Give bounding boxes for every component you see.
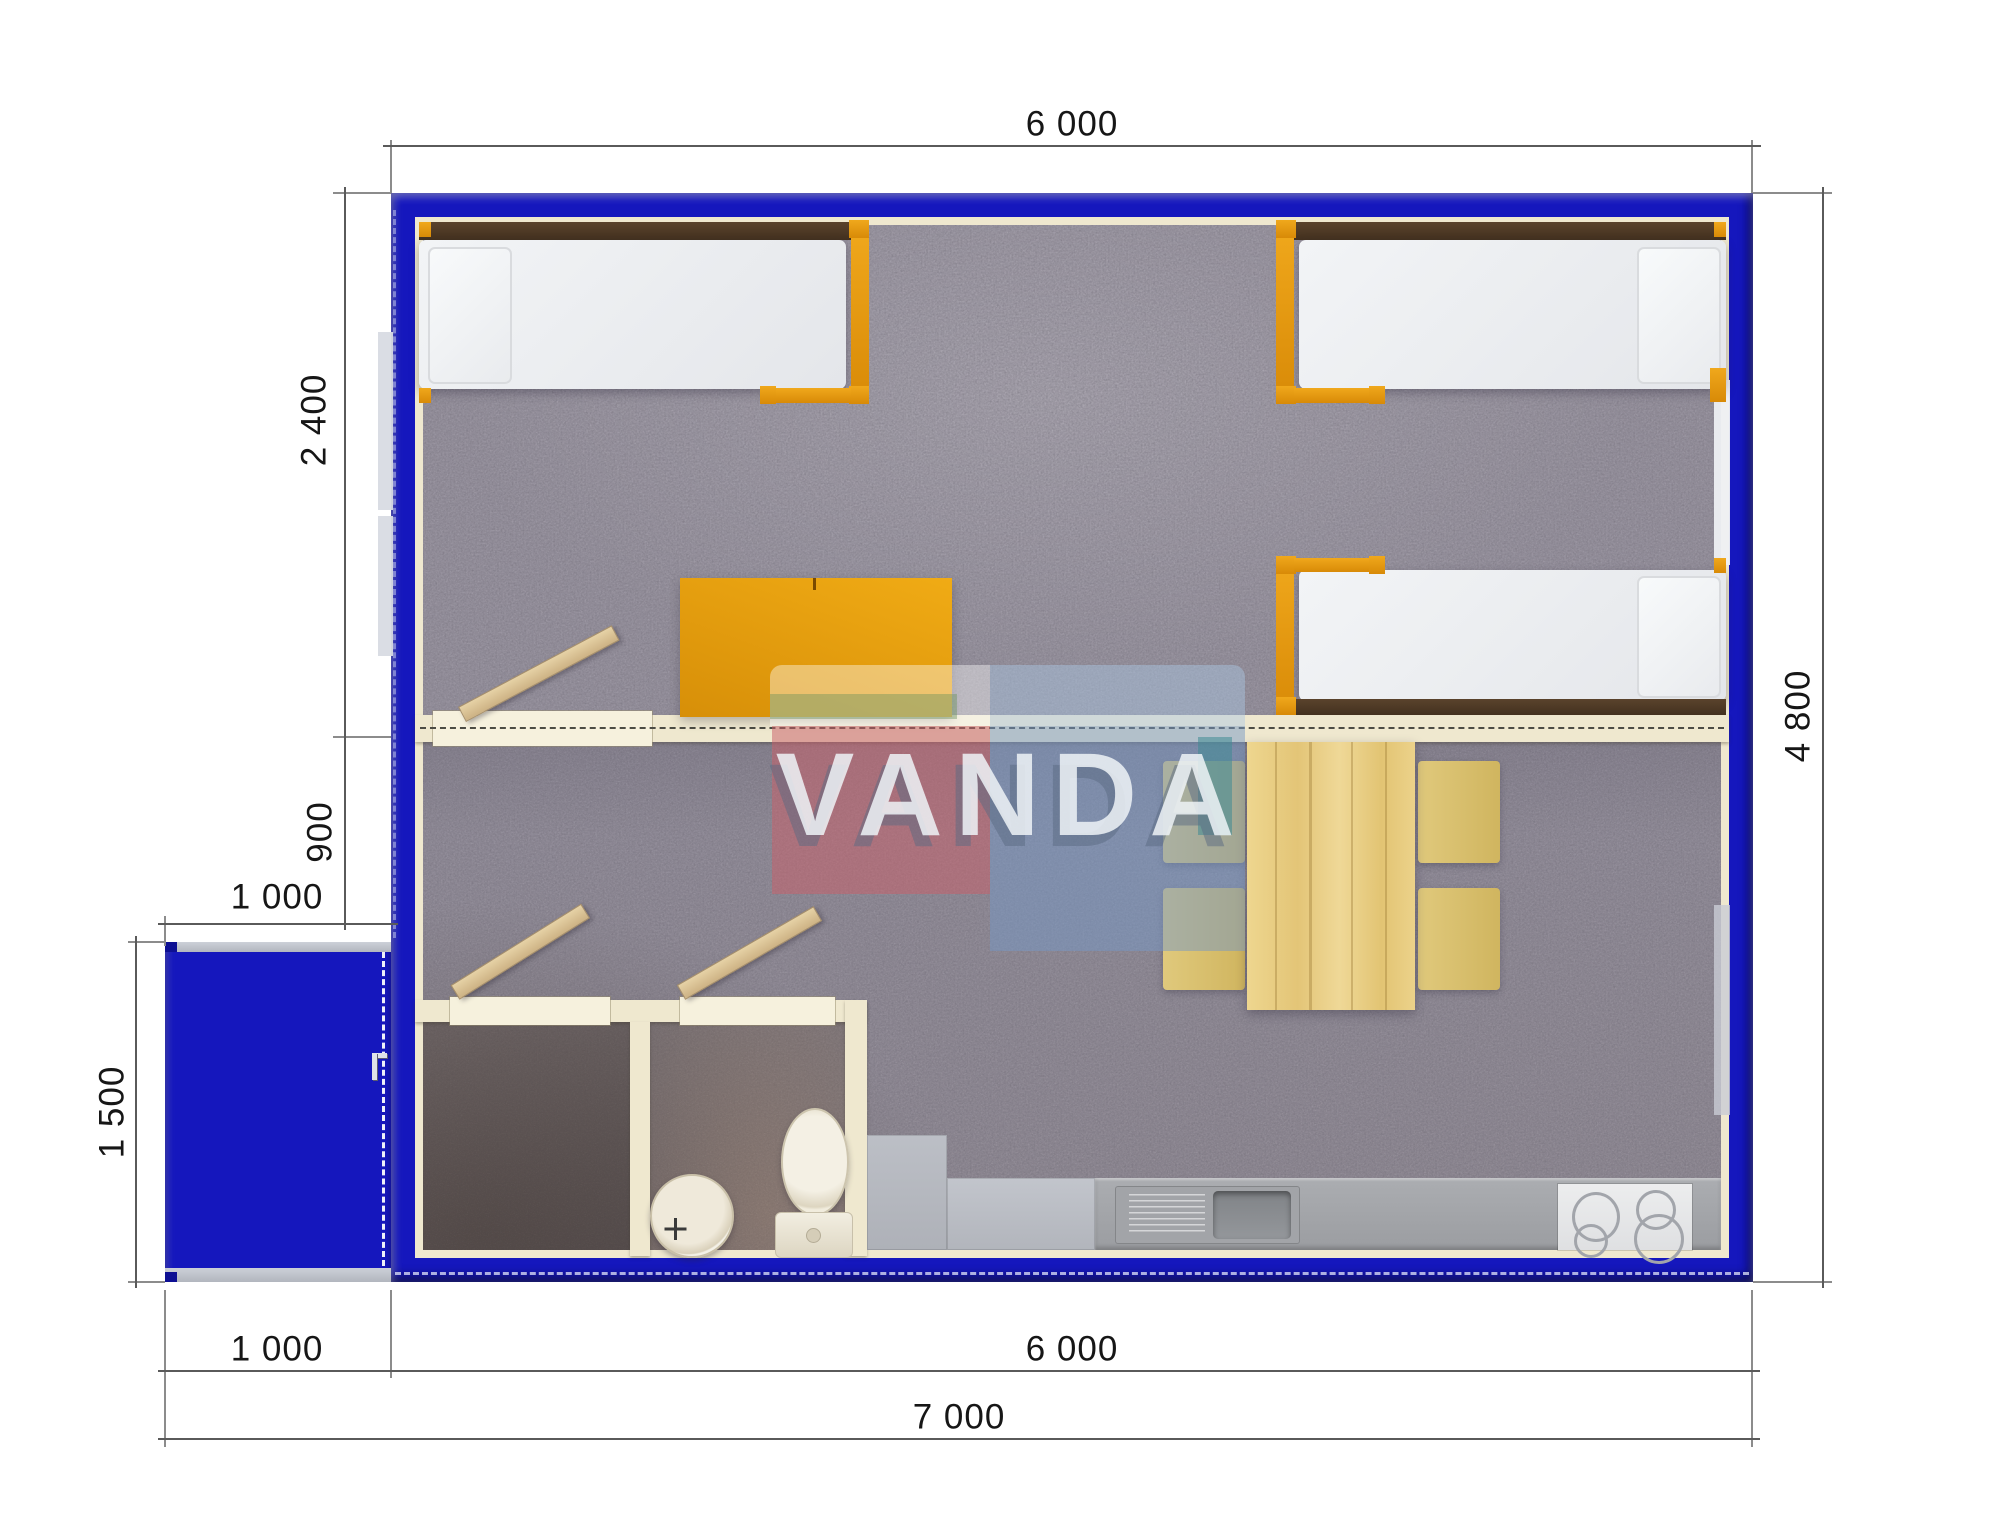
porch-corner-nub-top xyxy=(165,942,177,952)
extension-line xyxy=(1753,1281,1832,1283)
shower-door-opening xyxy=(450,997,610,1025)
toilet-icon xyxy=(781,1108,849,1216)
chair xyxy=(1418,761,1500,863)
wc-door-opening xyxy=(680,997,835,1025)
bed-pillow xyxy=(1637,576,1721,698)
bed-top-right xyxy=(1276,220,1726,404)
dimension-line-top xyxy=(383,145,1761,147)
dimension-label-bottom-main: 6 000 xyxy=(1026,1332,1119,1367)
bed-frame-nub xyxy=(1714,222,1726,237)
bed-top-left xyxy=(419,220,869,404)
dimension-line-bottom-split xyxy=(158,1370,1760,1372)
bed-headboard xyxy=(1294,699,1726,715)
extension-line xyxy=(164,1290,166,1447)
wood-grain xyxy=(1351,742,1353,1010)
kitchen-fridge-panel xyxy=(947,1178,1095,1250)
bed-frame-corner xyxy=(1276,697,1296,715)
dimension-line-porch-width xyxy=(158,923,398,925)
porch-step-top xyxy=(165,942,391,952)
window-left-upper xyxy=(378,332,393,510)
bathroom-divider-wall xyxy=(630,1022,650,1256)
dimension-label-bottom-total: 7 000 xyxy=(913,1400,1006,1435)
bed-pillow xyxy=(1637,247,1721,384)
dimension-line-porch-height xyxy=(135,936,137,1288)
dimension-label-bedroom-depth: 2 400 xyxy=(297,374,332,467)
bed-frame-corner xyxy=(1276,220,1296,238)
bed-frame-rail xyxy=(770,388,851,403)
bed-frame-corner xyxy=(849,220,869,238)
roof-overhang-dash-bottom xyxy=(395,1272,1749,1275)
bed-frame-rail xyxy=(1294,558,1375,572)
porch-door-dash-line xyxy=(382,952,385,1266)
bed-frame-nub xyxy=(419,388,431,403)
porch-step-bottom xyxy=(165,1268,391,1282)
bed-frame-rail xyxy=(1276,226,1294,402)
watermark-brand: VANDA xyxy=(772,736,1250,854)
window-right-lower xyxy=(1714,905,1730,1115)
dimension-label-bottom-porch: 1 000 xyxy=(231,1332,324,1367)
extension-line xyxy=(1751,140,1753,193)
dimension-label-total-depth: 4 800 xyxy=(1781,670,1816,763)
wood-grain xyxy=(1309,742,1312,1010)
desk-seam xyxy=(813,578,816,590)
extension-line xyxy=(390,1290,392,1378)
drainboard-grooves xyxy=(1129,1194,1205,1236)
kitchen-sink-basin xyxy=(1213,1191,1291,1239)
dimension-line-bottom-total xyxy=(158,1438,1760,1440)
bed-pillow xyxy=(428,247,512,384)
dimension-label-middle-depth: 900 xyxy=(303,801,338,862)
bed-frame-corner xyxy=(1276,386,1296,404)
bed-right-middle xyxy=(1276,556,1726,715)
flush-button xyxy=(806,1228,821,1243)
dimension-label-top-width: 6 000 xyxy=(1026,107,1119,142)
porch-corner-nub-bottom xyxy=(165,1272,177,1282)
dimension-line-left-chain xyxy=(344,187,346,930)
kitchen-sink-module xyxy=(1115,1186,1300,1244)
floor-plan-canvas: VANDA 6 000 2 400 900 1 000 1 500 4 800 … xyxy=(0,0,2000,1537)
faucet-icon xyxy=(664,1218,686,1240)
bed-frame-rail xyxy=(851,226,869,402)
bed-frame-nub xyxy=(1710,368,1726,402)
porch xyxy=(165,942,391,1282)
dimension-line-right xyxy=(1822,187,1824,1288)
bed-frame-corner xyxy=(849,386,869,404)
extension-line xyxy=(128,1281,165,1283)
bed-headboard xyxy=(419,222,851,240)
kitchen-cabinet xyxy=(867,1135,947,1250)
extension-line xyxy=(333,192,391,194)
bed-frame-nub xyxy=(419,222,431,237)
bed-frame-corner xyxy=(1276,556,1296,574)
window-right-upper xyxy=(1714,380,1730,565)
dimension-label-porch-width-top: 1 000 xyxy=(231,880,324,915)
burner-icon xyxy=(1634,1214,1684,1264)
extension-line xyxy=(1751,1290,1753,1447)
sink-icon xyxy=(650,1174,734,1258)
chair xyxy=(1418,888,1500,990)
bed-frame-nub xyxy=(1714,558,1726,573)
dining-table xyxy=(1247,742,1415,1010)
roof-overhang-dash-left xyxy=(393,210,396,938)
bed-frame-corner xyxy=(1369,556,1385,574)
bed-headboard xyxy=(1294,222,1726,240)
bed-frame-corner xyxy=(760,386,776,404)
bed-frame-rail xyxy=(1294,388,1375,403)
bed-frame-corner xyxy=(1369,386,1385,404)
wood-grain xyxy=(1275,742,1277,1010)
bed-frame-rail xyxy=(1276,558,1294,715)
extension-line xyxy=(333,736,391,738)
chair xyxy=(1163,888,1245,990)
extension-line xyxy=(128,941,165,943)
window-left-lower xyxy=(378,516,393,656)
burner-icon xyxy=(1574,1224,1608,1258)
extension-line xyxy=(1753,192,1832,194)
wood-grain xyxy=(1385,742,1387,1010)
extension-line xyxy=(390,140,392,193)
desk xyxy=(680,578,952,717)
shower-room-floor xyxy=(423,1013,630,1250)
dimension-label-porch-height: 1 500 xyxy=(95,1066,130,1159)
